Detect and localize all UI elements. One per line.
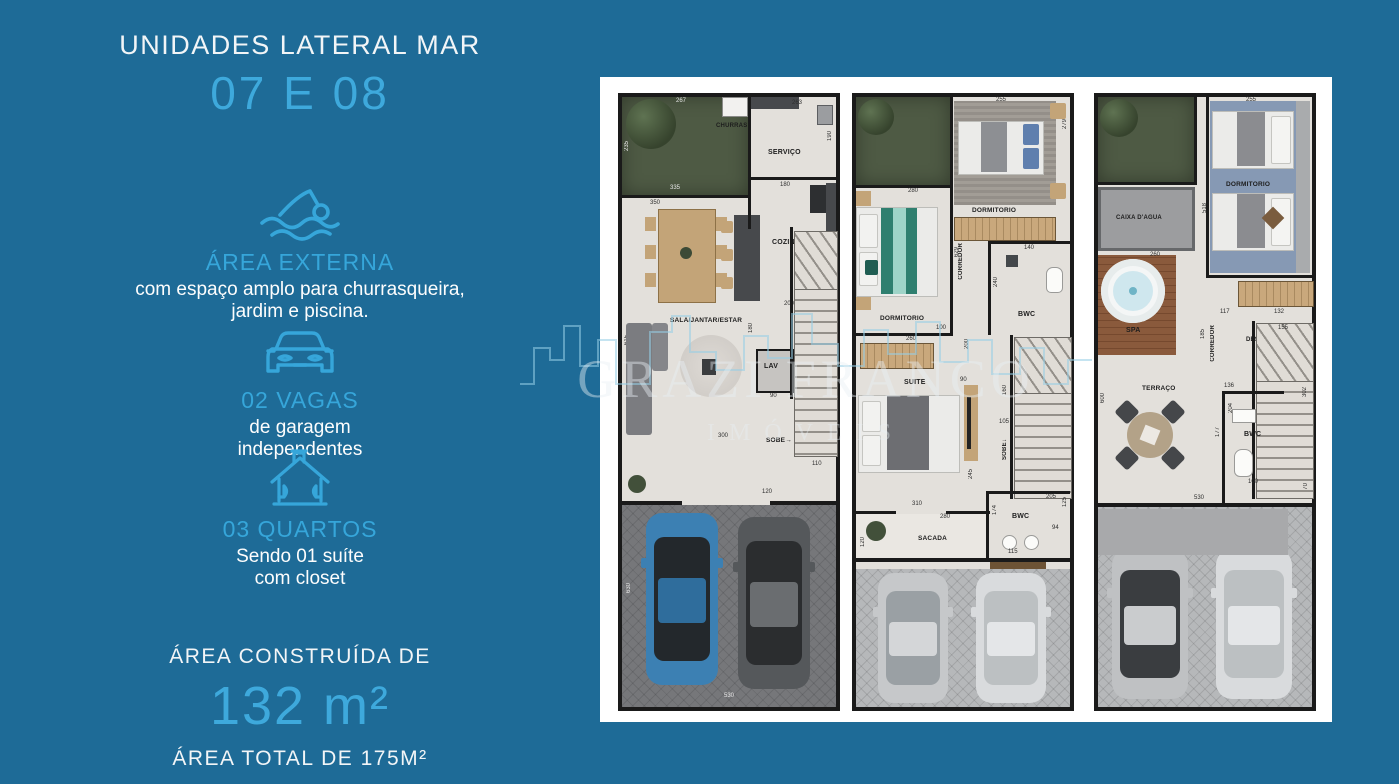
feature-text-line: de garagem <box>0 417 600 439</box>
chair <box>645 217 656 231</box>
room-label-caixa-dagua: CAIXA D'AGUA <box>1116 215 1162 221</box>
tv-stand <box>964 385 978 461</box>
nightstand <box>856 295 871 310</box>
dim-label: 263 <box>792 100 802 106</box>
dim-label: 260 <box>1150 252 1160 258</box>
plant <box>628 475 646 493</box>
area-summary: ÁREA CONSTRUÍDA DE 132 m² ÁREA TOTAL DE … <box>0 645 600 771</box>
chair <box>716 245 727 259</box>
dim-label: 630 <box>626 583 632 593</box>
swimmer-icon <box>258 185 342 243</box>
stairs-winder <box>1014 337 1072 395</box>
dim-label: 530 <box>724 693 734 699</box>
laundry-sink <box>817 105 833 125</box>
dim-label: 94 <box>1052 525 1059 531</box>
dim-label: 174 <box>992 505 998 515</box>
feature-heading: ÁREA EXTERNA <box>0 249 600 276</box>
stairs-up-label: SOBE <box>766 437 792 444</box>
dim-label: 310 <box>912 501 922 507</box>
sink <box>1024 535 1039 550</box>
dim-label: 279 <box>1062 119 1068 129</box>
grill-hood <box>722 97 748 117</box>
lavatory-room <box>756 349 794 393</box>
dim-label: 255 <box>1246 97 1256 103</box>
dim-label: 160 <box>1002 385 1008 395</box>
house-icon <box>268 448 332 510</box>
side-shelf <box>1296 101 1310 273</box>
roof-slab <box>1098 509 1288 555</box>
floorplan-terrace: 255 518 DORMITORIO CAIXA D'AGUA 260 SPA … <box>1094 93 1316 711</box>
room-label-churras: CHURRAS <box>716 123 747 129</box>
car-top-view <box>1216 549 1292 699</box>
dim-label: 245 <box>968 469 974 479</box>
dim-label: 125 <box>1062 497 1068 507</box>
room-label-corredor: CORREDOR <box>1210 325 1216 362</box>
dim-label: 100 <box>1248 479 1258 485</box>
wardrobe <box>1238 281 1314 307</box>
dim-label: 530 <box>1194 495 1204 501</box>
dim-label: 600 <box>1100 393 1106 403</box>
stairs <box>794 289 838 457</box>
page-title: UNIDADES LATERAL MAR <box>0 30 600 61</box>
nightstand <box>856 191 871 206</box>
car-top-view <box>1112 549 1188 699</box>
unit-numbers: 07 E 08 <box>0 66 600 120</box>
tree <box>1100 99 1138 137</box>
dim-label: 120 <box>860 537 866 547</box>
dim-label: 185 <box>1200 329 1206 339</box>
dim-label: 177 <box>1215 427 1221 437</box>
feature-heading: 02 VAGAS <box>0 387 600 414</box>
room-label-bwc: BWC <box>1012 513 1029 520</box>
page: { "colors": { "background": "#1e6b97", "… <box>0 0 1399 784</box>
dim-label: 105 <box>999 419 1009 425</box>
wardrobe <box>954 217 1056 241</box>
room-label-terraco: TERRAÇO <box>1142 385 1176 392</box>
feature-area-externa: ÁREA EXTERNA com espaço amplo para churr… <box>0 185 600 323</box>
dim-label: 136 <box>1224 383 1234 389</box>
bed <box>858 395 960 473</box>
sink <box>1232 409 1256 423</box>
kitchen-island <box>734 215 760 301</box>
feature-heading: 03 QUARTOS <box>0 516 600 543</box>
dim-label: 240 <box>993 277 999 287</box>
chair <box>716 273 727 287</box>
dim-label: 120 <box>762 489 772 495</box>
room-label-bwc: BWC <box>1018 311 1035 318</box>
dim-label: 117 <box>1220 309 1230 315</box>
spa-tub <box>1101 259 1165 323</box>
nightstand <box>1050 183 1066 199</box>
room-label-dormitorio: DORMITORIO <box>972 207 1016 214</box>
garden-area <box>1098 97 1194 182</box>
car-top-view <box>976 573 1046 703</box>
coffee-table <box>702 359 716 375</box>
dim-label: 335 <box>670 185 680 191</box>
room-label-sacada: SACADA <box>918 535 947 542</box>
car-icon <box>264 325 336 381</box>
dim-label: 190 <box>827 131 833 141</box>
car-top-view <box>646 513 718 685</box>
centerpiece-plant <box>680 247 692 259</box>
room-label-lav: LAV <box>764 363 778 370</box>
dim-label: 235 <box>624 141 630 151</box>
stairs-winder <box>794 231 838 291</box>
dim-label: 260 <box>906 336 916 342</box>
nightstand <box>1050 103 1066 119</box>
built-area-label: ÁREA CONSTRUÍDA DE <box>0 645 600 669</box>
tree <box>626 99 676 149</box>
dim-label: 90 <box>770 393 777 399</box>
chair <box>716 217 727 231</box>
room-label-dormitorio: DORMITORIO <box>880 315 924 322</box>
shower <box>1006 255 1018 267</box>
bed <box>856 207 938 297</box>
car-top-view <box>738 517 810 689</box>
dim-label: 90 <box>960 377 967 383</box>
total-area-label: ÁREA TOTAL DE 175M² <box>0 747 600 771</box>
feature-text-line: com closet <box>0 568 600 590</box>
dim-label: 267 <box>676 98 686 104</box>
dim-label: 155 <box>1278 325 1288 331</box>
room-label-servico: SERVIÇO <box>768 149 801 156</box>
plant <box>866 521 886 541</box>
room-label-spa: SPA <box>1126 327 1140 334</box>
bed <box>958 121 1044 175</box>
stairs-up-label: SOBE <box>1002 439 1008 460</box>
car-top-view <box>878 573 948 703</box>
room-label-dormitorio: DORMITORIO <box>1226 181 1270 188</box>
chair <box>645 273 656 287</box>
floorplan-ground: 267 235 335 CHURRAS 263 190 SERVIÇO 180 … <box>618 93 840 711</box>
room-label-corredor: CORREDOR <box>958 243 964 280</box>
dim-label: 180 <box>780 182 790 188</box>
stove <box>810 185 826 213</box>
floorplan-card: 267 235 335 CHURRAS 263 190 SERVIÇO 180 … <box>600 77 1332 722</box>
floorplan-upper: 255 279 DORMITORIO 629 140 240 BWC 280 3… <box>852 93 1074 711</box>
terrace-table <box>1127 412 1173 458</box>
dim-label: 302 <box>1302 387 1308 397</box>
dim-label: 280 <box>908 188 918 194</box>
stairs <box>1256 381 1314 499</box>
bed <box>1212 193 1294 251</box>
tree <box>858 99 894 135</box>
dim-label: 180 <box>748 323 754 333</box>
sink <box>1002 535 1017 550</box>
toilet <box>1234 449 1253 477</box>
dim-label: 100 <box>936 325 946 331</box>
toilet <box>1046 267 1063 293</box>
garden-area <box>856 97 950 185</box>
dim-label: 205 <box>1046 494 1056 500</box>
sofa <box>626 323 652 435</box>
room-label-bwc: BWC <box>1244 431 1261 438</box>
dim-label: 280 <box>940 514 950 520</box>
bed <box>1212 111 1294 169</box>
dim-label: 110 <box>812 461 822 467</box>
dim-label: 115 <box>1008 549 1018 555</box>
stairs-winder <box>1256 323 1314 383</box>
chair <box>645 245 656 259</box>
feature-vagas: 02 VAGAS de garagem independentes <box>0 325 600 461</box>
dim-label: 300 <box>718 433 728 439</box>
feature-text-line: Sendo 01 suíte <box>0 546 600 568</box>
room-label-sala: SALA/JANTAR/ESTAR <box>670 317 742 324</box>
dim-label: 350 <box>650 200 660 206</box>
dim-label: 200 <box>964 339 970 349</box>
dim-label: 255 <box>996 97 1006 103</box>
dim-label: 132 <box>1274 309 1284 315</box>
grate <box>990 562 1046 569</box>
wardrobe <box>860 343 934 369</box>
sofa-chaise <box>652 323 668 371</box>
feature-quartos: 03 QUARTOS Sendo 01 suíte com closet <box>0 448 600 590</box>
stairs <box>1014 393 1072 499</box>
feature-text-line: com espaço amplo para churrasqueira, <box>0 279 600 301</box>
feature-text-line: jardim e piscina. <box>0 301 600 323</box>
built-area-value: 132 m² <box>0 675 600 737</box>
room-label-suite: SUITE <box>904 379 926 386</box>
dim-label: 140 <box>1024 245 1034 251</box>
dim-label: 70 <box>1303 483 1309 490</box>
